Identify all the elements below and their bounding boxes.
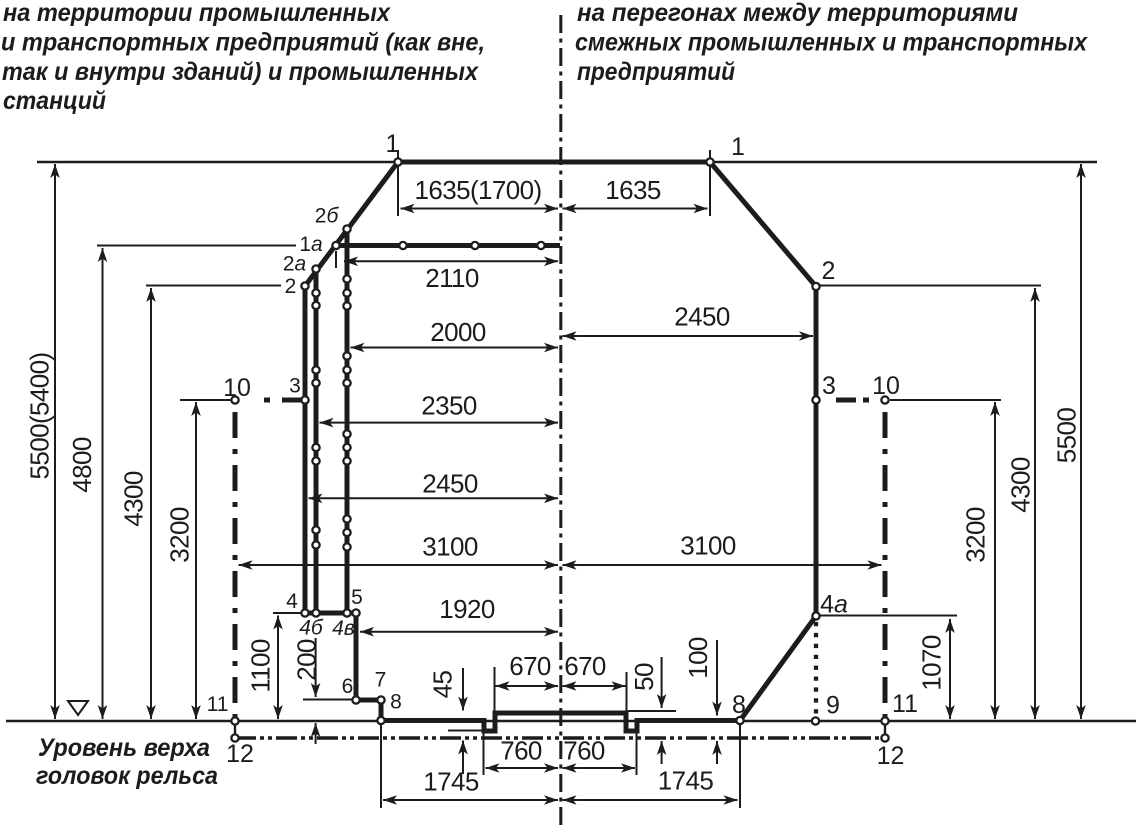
svg-text:4а: 4а — [820, 591, 848, 619]
svg-text:2б: 2б — [315, 205, 340, 228]
svg-text:4800: 4800 — [67, 437, 97, 493]
svg-text:2: 2 — [822, 257, 836, 285]
svg-text:1: 1 — [731, 133, 745, 161]
svg-text:4б: 4б — [299, 617, 324, 640]
svg-text:1100: 1100 — [246, 639, 276, 693]
svg-text:10: 10 — [223, 374, 251, 402]
svg-text:5500: 5500 — [1052, 408, 1082, 464]
svg-text:9: 9 — [826, 692, 840, 720]
svg-text:1745: 1745 — [658, 766, 714, 796]
svg-text:станций: станций — [3, 87, 106, 115]
svg-text:2450: 2450 — [674, 302, 730, 332]
svg-text:3200: 3200 — [165, 507, 195, 563]
svg-text:на территории промышленных: на территории промышленных — [3, 0, 391, 27]
svg-text:2450: 2450 — [422, 469, 478, 499]
svg-text:50: 50 — [629, 663, 659, 691]
svg-text:11: 11 — [892, 690, 918, 718]
svg-text:1920: 1920 — [439, 594, 495, 624]
svg-text:4: 4 — [286, 590, 298, 613]
svg-text:так и внутри зданий) и промышл: так и внутри зданий) и промышленных — [2, 58, 479, 86]
svg-text:12: 12 — [877, 742, 905, 770]
svg-text:предприятий: предприятий — [577, 58, 735, 86]
svg-text:11: 11 — [207, 693, 229, 716]
svg-text:200: 200 — [292, 639, 322, 681]
svg-text:6: 6 — [342, 675, 354, 698]
svg-text:3100: 3100 — [680, 531, 736, 561]
svg-text:4300: 4300 — [119, 471, 149, 527]
svg-text:2110: 2110 — [425, 263, 479, 293]
svg-text:2000: 2000 — [430, 317, 486, 347]
svg-text:3100: 3100 — [422, 532, 478, 562]
svg-text:1635(1700): 1635(1700) — [415, 175, 542, 205]
svg-text:760: 760 — [563, 736, 605, 766]
svg-text:12: 12 — [226, 740, 254, 768]
svg-text:на перегонах между территориям: на перегонах между территориями — [577, 0, 1018, 27]
svg-text:8: 8 — [390, 691, 402, 714]
svg-text:45: 45 — [428, 671, 458, 699]
svg-text:3: 3 — [822, 372, 836, 400]
svg-text:3: 3 — [289, 375, 301, 398]
svg-text:1635: 1635 — [605, 175, 661, 205]
svg-text:2350: 2350 — [421, 391, 477, 421]
svg-text:и транспортных предприятий (ка: и транспортных предприятий (как вне, — [1, 29, 485, 57]
svg-text:головок рельса: головок рельса — [36, 762, 218, 790]
svg-text:670: 670 — [509, 651, 551, 681]
svg-text:8: 8 — [732, 691, 746, 719]
svg-text:4300: 4300 — [1006, 457, 1036, 513]
svg-text:1745: 1745 — [423, 767, 479, 797]
svg-text:10: 10 — [872, 372, 900, 400]
svg-text:670: 670 — [564, 651, 606, 681]
svg-text:1: 1 — [386, 130, 400, 158]
svg-text:100: 100 — [683, 637, 713, 679]
svg-text:5500(5400): 5500(5400) — [25, 353, 55, 480]
svg-text:2а: 2а — [283, 253, 306, 276]
svg-text:4в: 4в — [332, 617, 355, 640]
svg-text:смежных промышленных и транспо: смежных промышленных и транспортных — [575, 29, 1088, 57]
svg-text:3200: 3200 — [961, 507, 991, 563]
svg-text:5: 5 — [351, 586, 363, 609]
svg-text:Уровень верха: Уровень верха — [38, 734, 210, 762]
svg-text:7: 7 — [375, 669, 387, 692]
svg-text:2: 2 — [285, 275, 297, 298]
svg-text:1070: 1070 — [917, 635, 947, 691]
svg-text:760: 760 — [500, 736, 542, 766]
